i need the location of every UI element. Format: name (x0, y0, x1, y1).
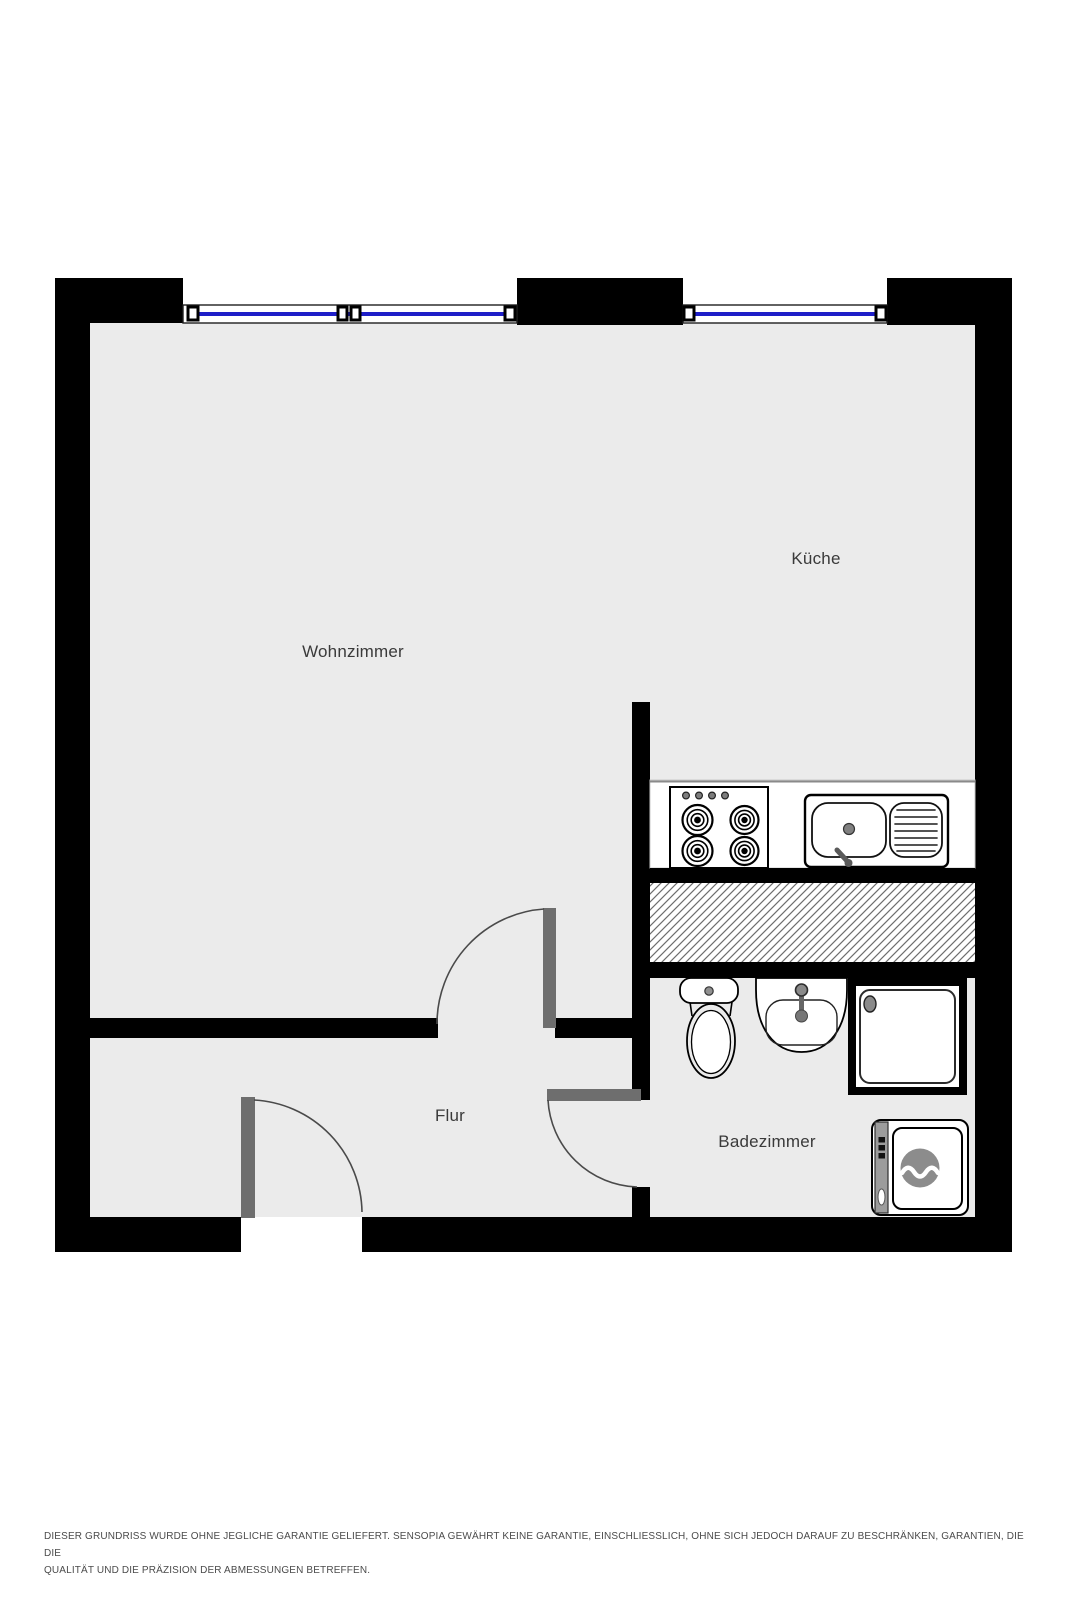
floor-plan-drawing (0, 0, 1067, 1600)
disclaimer-line-1: DIESER GRUNDRISS WURDE OHNE JEGLICHE GAR… (44, 1528, 1034, 1562)
window-kitchen-icon (683, 305, 887, 323)
wall-left (55, 278, 90, 1252)
floor-area (90, 323, 975, 1217)
door-leaf (543, 908, 556, 1028)
wall-right (975, 278, 1012, 1252)
wall-top-mid-block (517, 278, 683, 325)
room-label-kueche: Küche (791, 549, 840, 569)
kitchen-sink-icon (805, 795, 948, 867)
shaft-hatch (650, 883, 975, 962)
door-leaf (547, 1089, 641, 1101)
room-label-badezimmer: Badezimmer (718, 1132, 815, 1152)
wall-hallway-left (90, 1018, 438, 1038)
washing-machine-icon (872, 1120, 968, 1215)
room-label-wohnzimmer: Wohnzimmer (302, 642, 404, 662)
door-leaf (241, 1097, 255, 1218)
floor-plan: Wohnzimmer Küche Flur Badezimmer DIESER … (0, 0, 1067, 1600)
entrance-gap (241, 1217, 362, 1252)
wall-kitchen-bath-vertical (632, 702, 650, 1100)
wall-top-left-block (55, 278, 183, 323)
wall-bath-door-stub (632, 1187, 650, 1217)
room-label-flur: Flur (435, 1106, 465, 1126)
shower-icon (852, 982, 963, 1091)
stove-icon (670, 787, 768, 868)
disclaimer-text: DIESER GRUNDRISS WURDE OHNE JEGLICHE GAR… (44, 1528, 1034, 1579)
disclaimer-line-2: QUALITÄT UND DIE PRÄZISION DER ABMESSUNG… (44, 1562, 1034, 1579)
wall-hallway-right (555, 1018, 650, 1038)
wall-bottom (55, 1217, 1012, 1252)
window-living-room-icon (183, 305, 517, 323)
wall-top-right-block (887, 278, 1012, 325)
